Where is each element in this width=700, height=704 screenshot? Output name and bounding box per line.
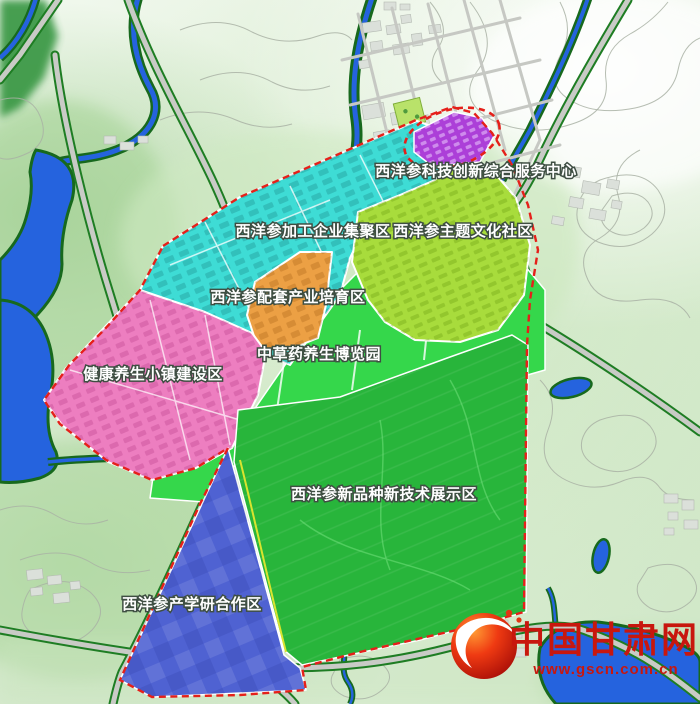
- pond-east: [548, 374, 593, 402]
- watermark: 中国甘肃网 www.gscn.com.cn: [451, 610, 699, 679]
- watermark-site-name: 中国甘肃网: [509, 619, 699, 660]
- label-supporting-industry-cultivation: 西洋参配套产业培育区: [210, 288, 365, 306]
- label-tech-innovation-service-center: 西洋参科技创新综合服务中心: [375, 162, 577, 180]
- label-theme-culture-community: 西洋参主题文化社区: [393, 222, 533, 240]
- label-industry-university-research: 西洋参产学研合作区: [122, 595, 262, 613]
- label-new-variety-tech-display: 西洋参新品种新技术展示区: [291, 485, 477, 503]
- label-health-wellness-town: 健康养生小镇建设区: [83, 365, 223, 383]
- label-herbal-wellness-expo-park: 中草药养生博览园: [257, 345, 381, 363]
- label-processing-enterprise-cluster: 西洋参加工企业集聚区: [235, 222, 390, 240]
- map-svg: 西洋参科技创新综合服务中心 西洋参加工企业集聚区 西洋参主题文化社区 西洋参配套…: [0, 0, 700, 704]
- planning-map: 西洋参科技创新综合服务中心 西洋参加工企业集聚区 西洋参主题文化社区 西洋参配套…: [0, 0, 700, 704]
- pond-southeast: [590, 538, 613, 575]
- watermark-site-url: www.gscn.com.cn: [532, 661, 678, 678]
